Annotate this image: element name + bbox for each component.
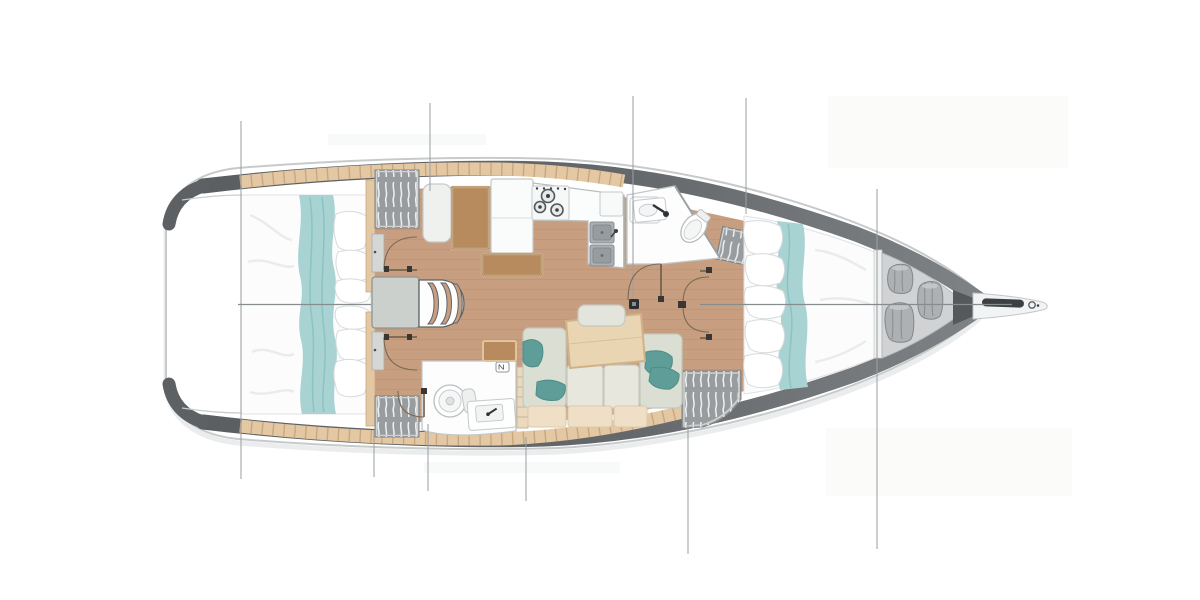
bowsprit	[973, 293, 1047, 319]
mast-step	[629, 299, 639, 309]
bow-area	[882, 253, 1047, 358]
bag-1	[888, 264, 913, 293]
salon-stool	[578, 305, 625, 326]
aft-vanity	[467, 398, 516, 430]
hatch-badge	[496, 362, 509, 372]
ghost-block-top	[828, 96, 1068, 168]
companionway	[372, 277, 464, 328]
sofa-seat-2	[604, 365, 639, 408]
ghost-smudge-bottom	[424, 462, 620, 473]
wardrobe-aft-starboard	[375, 396, 419, 437]
door-handle-port	[374, 251, 377, 254]
chart-table	[452, 187, 489, 249]
nav-seat	[423, 184, 451, 242]
door-handle-starboard	[374, 349, 377, 352]
bag-3	[885, 303, 914, 343]
ghost-smudge-top	[328, 134, 486, 145]
companionway-platform	[372, 277, 419, 328]
yacht-floorplan-image	[0, 0, 1200, 600]
bag-2	[918, 281, 943, 319]
cabinet-brown	[483, 341, 516, 361]
yacht-floorplan-page	[0, 0, 1200, 600]
sofa-seat-1	[567, 365, 603, 408]
fridge-lid	[600, 192, 623, 216]
wardrobe-aft-port	[375, 170, 419, 228]
galley-brown-shelf	[482, 254, 542, 276]
galley-cabinet	[491, 179, 533, 253]
bowsprit-tip-pin	[1037, 304, 1040, 307]
aft-cabin-door-starboard	[372, 332, 384, 370]
ghost-block-bottom	[826, 428, 1072, 496]
door-pivot-post	[678, 301, 686, 308]
aft-cabin-door-port	[372, 234, 384, 272]
anchor-bar	[982, 298, 1024, 307]
sofa-bench-row	[528, 406, 647, 427]
aft-cabins	[241, 180, 384, 426]
